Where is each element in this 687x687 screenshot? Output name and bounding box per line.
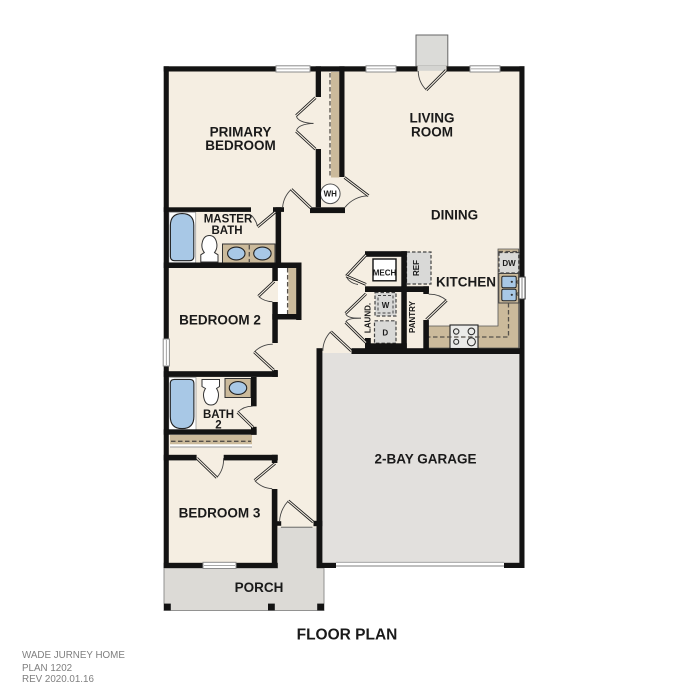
svg-text:DW: DW [502,259,516,268]
svg-text:MASTER: MASTER [204,214,253,226]
svg-text:W: W [382,301,390,310]
svg-text:PANTRY: PANTRY [408,300,417,333]
svg-text:BEDROOM 3: BEDROOM 3 [179,506,261,521]
svg-text:FLOOR PLAN: FLOOR PLAN [297,627,398,644]
svg-text:WADE JURNEY HOME: WADE JURNEY HOME [22,650,125,661]
svg-text:2: 2 [215,419,221,431]
svg-text:D: D [382,329,388,338]
svg-text:LAUND.: LAUND. [364,303,373,333]
svg-text:BATH: BATH [211,225,242,237]
svg-text:PLAN 1202: PLAN 1202 [22,663,72,674]
svg-text:MECH: MECH [373,269,397,278]
svg-text:PORCH: PORCH [235,580,284,595]
svg-text:2-BAY GARAGE: 2-BAY GARAGE [374,452,476,467]
svg-text:BEDROOM 2: BEDROOM 2 [179,313,261,328]
svg-text:LIVING: LIVING [409,111,454,126]
svg-text:REV 2020.01.16: REV 2020.01.16 [22,674,94,685]
svg-text:ROOM: ROOM [411,125,453,140]
svg-text:DINING: DINING [431,208,478,223]
svg-text:KITCHEN: KITCHEN [436,275,496,290]
svg-text:REF: REF [412,260,421,276]
svg-text:WH: WH [324,190,338,199]
svg-text:BEDROOM: BEDROOM [205,138,276,153]
